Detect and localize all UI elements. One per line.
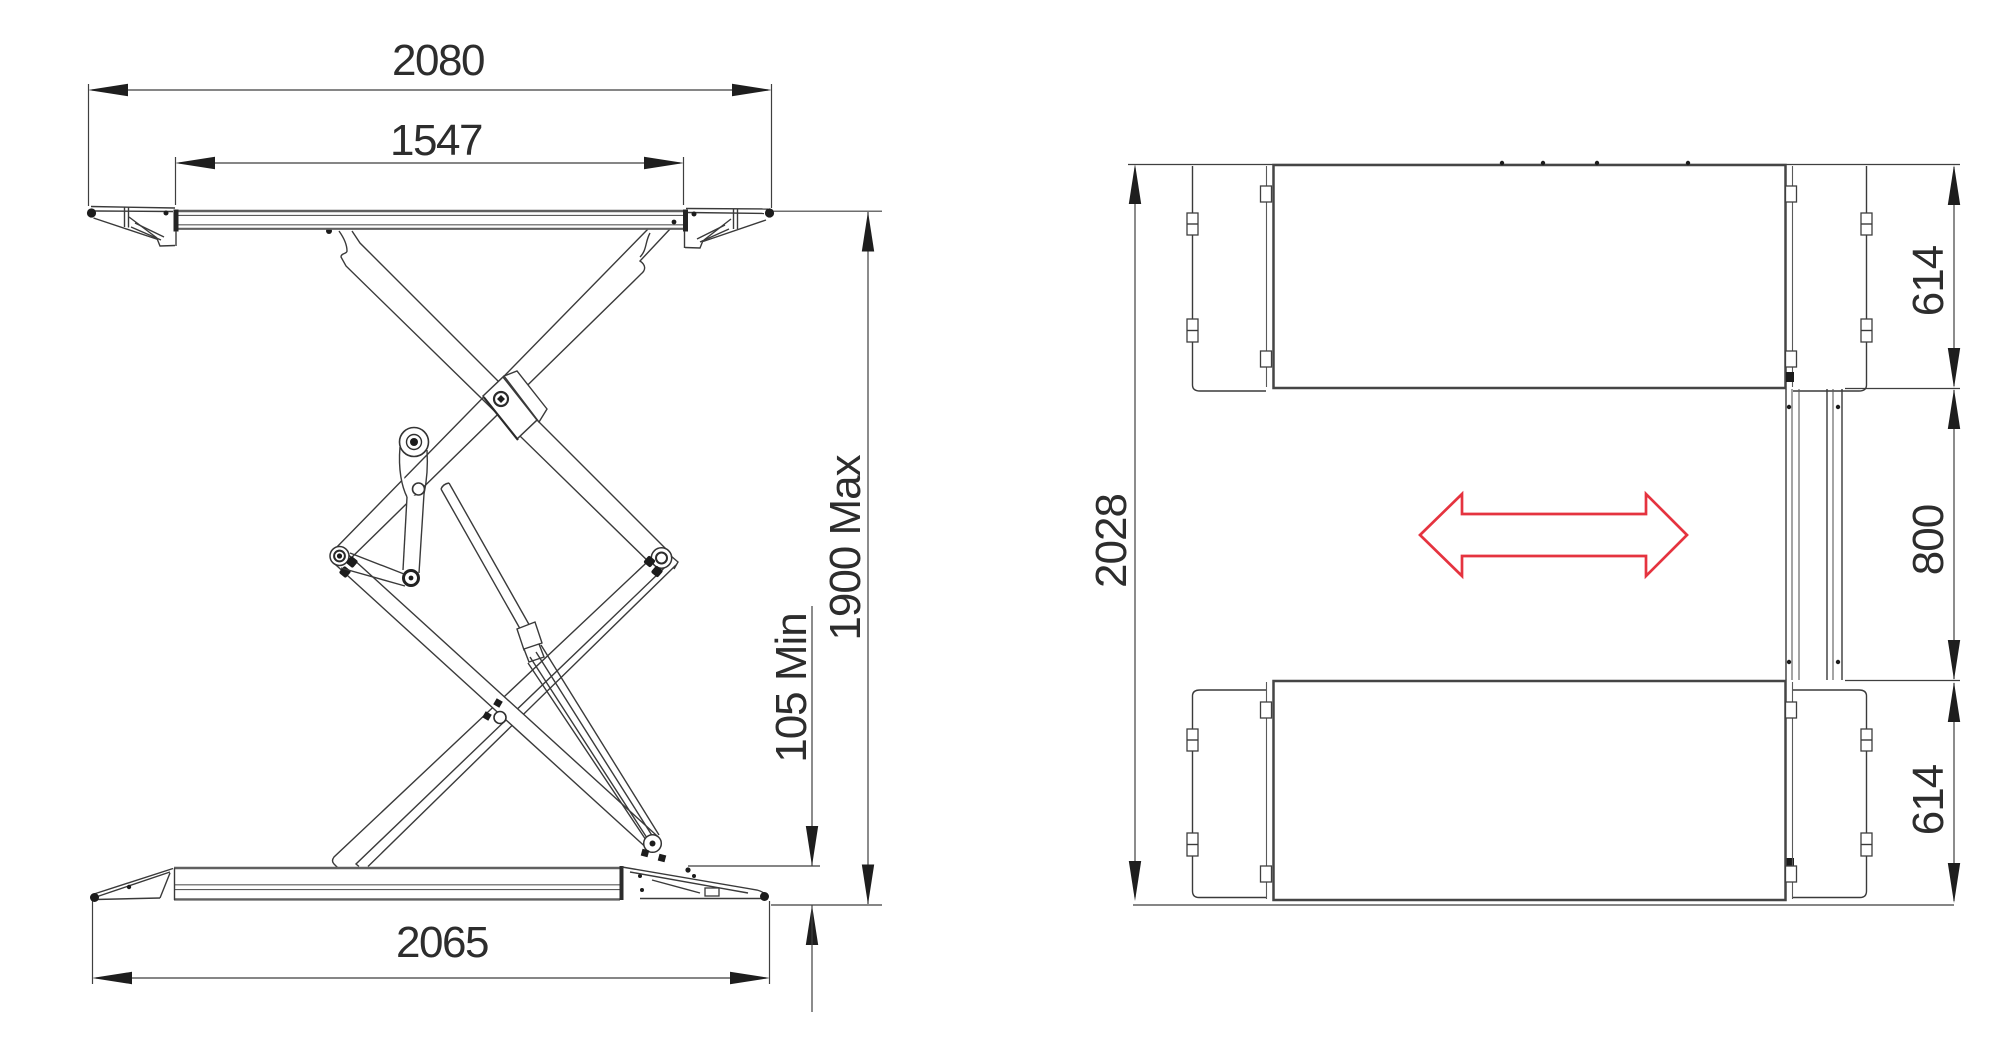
svg-text:614: 614 [1904,245,1953,316]
svg-text:2028: 2028 [1087,494,1136,588]
svg-text:614: 614 [1904,764,1953,835]
svg-text:1547: 1547 [390,116,482,165]
svg-text:1900 Max: 1900 Max [821,454,870,640]
svg-text:2080: 2080 [392,36,484,85]
svg-text:105 Min: 105 Min [767,613,816,763]
svg-text:2065: 2065 [396,918,488,967]
svg-text:800: 800 [1904,505,1953,575]
